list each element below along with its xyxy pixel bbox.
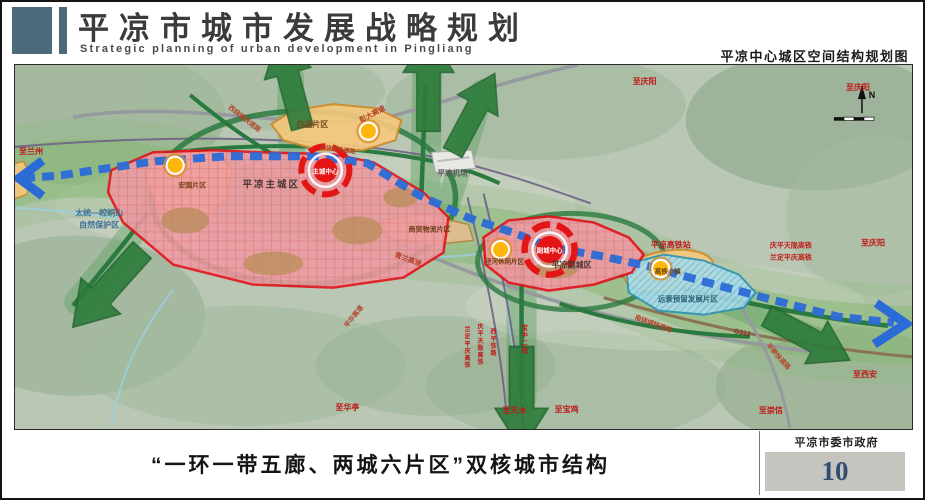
map-label: 至兰州 [19,146,43,156]
map-label: 至庆阳 [633,76,657,86]
map-label: 泾河休闲片区 [485,257,524,266]
map-label: 远景预留发展片区 [658,294,718,304]
map-label: 平凉主城区 [243,178,300,190]
map-label: 副城中心 [537,246,563,255]
map-label: 高铁小镇 [655,267,681,276]
map-label: 商贸物流片区 [408,224,450,233]
map-label: 平凉高铁站 [651,239,691,249]
map-label: 兰定平庆高铁 [770,253,812,262]
map-label: 主城中心 [312,166,338,175]
map-label: 至天水 [503,405,528,415]
map-label: 西平铁路 [491,328,498,357]
page-number: 10 [822,456,849,487]
planning-map: 平凉主城区主城中心平凉副城区副城中心白庙片区安国片区商贸物流片区泾河休闲片区远景… [14,64,913,430]
map-label: 至崇信 [759,405,783,415]
map-label: 庆平天陇高铁 [769,240,812,249]
scale-bar [834,117,874,121]
map-label: 白庙片区 [296,119,328,129]
structure-caption: “一环一带五廊、两城六片区”双核城市结构 [2,449,759,479]
agency-name: 平凉市委市政府 [760,434,913,450]
planning-slide: 平凉市城市发展战略规划 Strategic planning of urban … [0,0,925,500]
map-label: 安国片区 [178,180,206,189]
page-number-box: 10 [765,452,905,491]
logo-bar [59,7,67,54]
map-label: 太统—崆峒山 [74,207,123,217]
map-label: 至庆阳 [846,82,870,92]
logo-square [12,7,52,54]
map-label: 平凉机场 [437,167,467,177]
map-label: 庆平天陇高铁 [477,323,484,366]
map-label: 至西安 [853,369,877,379]
map-title: 平凉中心城区空间结构规划图 [720,46,909,65]
map-label: 宝中二线 [521,323,528,355]
map-svg: 平凉主城区主城中心平凉副城区副城中心白庙片区安国片区商贸物流片区泾河休闲片区远景… [15,65,912,429]
map-label: 自然保护区 [79,219,119,229]
map-label: 至华亭 [335,402,359,412]
map-label: 至宝鸡 [555,404,579,414]
map-label: 兰定平庆高铁 [463,326,470,369]
map-label: 至庆阳 [861,237,885,247]
map-label: N [869,90,875,100]
map-label: 平凉副城区 [552,260,592,270]
footer-infobox: 平凉市委市政府 10 [759,431,913,495]
page-subtitle-english: Strategic planning of urban development … [80,43,474,55]
page-title: 平凉市城市发展战略规划 [78,3,529,48]
header: 平凉市城市发展战略规划 Strategic planning of urban … [2,2,923,64]
